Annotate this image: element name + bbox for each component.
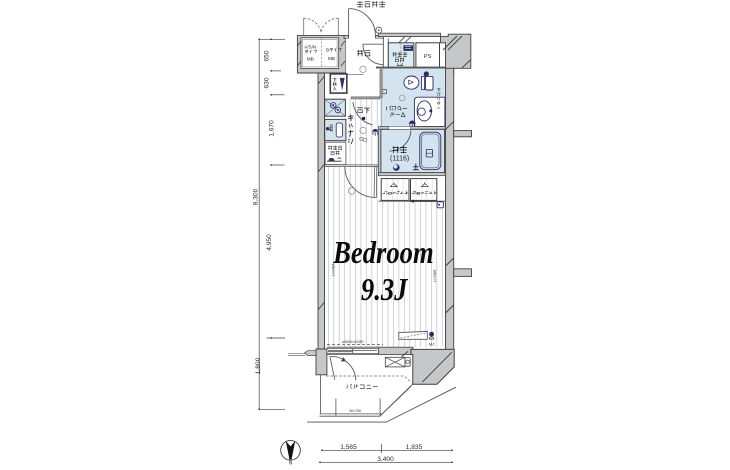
svg-text:A/S/N: A/S/N	[304, 44, 316, 49]
svg-text:4,950: 4,950	[266, 234, 273, 251]
svg-text:650: 650	[264, 50, 271, 61]
svg-text:(1116): (1116)	[390, 155, 409, 162]
svg-text:1,670: 1,670	[269, 120, 276, 137]
svg-text:B: B	[326, 48, 329, 53]
svg-text:PS: PS	[424, 54, 432, 60]
svg-text:MB: MB	[307, 57, 314, 63]
svg-text:9.3J: 9.3J	[361, 273, 409, 308]
svg-text:1,800: 1,800	[255, 357, 262, 374]
svg-text:Bedroom: Bedroom	[332, 236, 433, 271]
svg-text:W600×7: W600×7	[331, 264, 335, 277]
svg-text:MB: MB	[328, 56, 335, 62]
svg-text:w1600×h2030: w1600×h2030	[342, 340, 364, 344]
svg-text:3,400: 3,400	[377, 456, 394, 463]
svg-text:630: 630	[264, 77, 271, 88]
svg-text:N: N	[289, 461, 293, 467]
svg-text:1,565: 1,565	[340, 444, 357, 451]
svg-text:MC: MC	[429, 342, 435, 347]
svg-text:W600×7: W600×7	[432, 270, 436, 283]
svg-text:1,835: 1,835	[406, 444, 423, 451]
svg-text:W=750: W=750	[350, 409, 362, 413]
svg-text:8,300: 8,300	[253, 188, 260, 205]
